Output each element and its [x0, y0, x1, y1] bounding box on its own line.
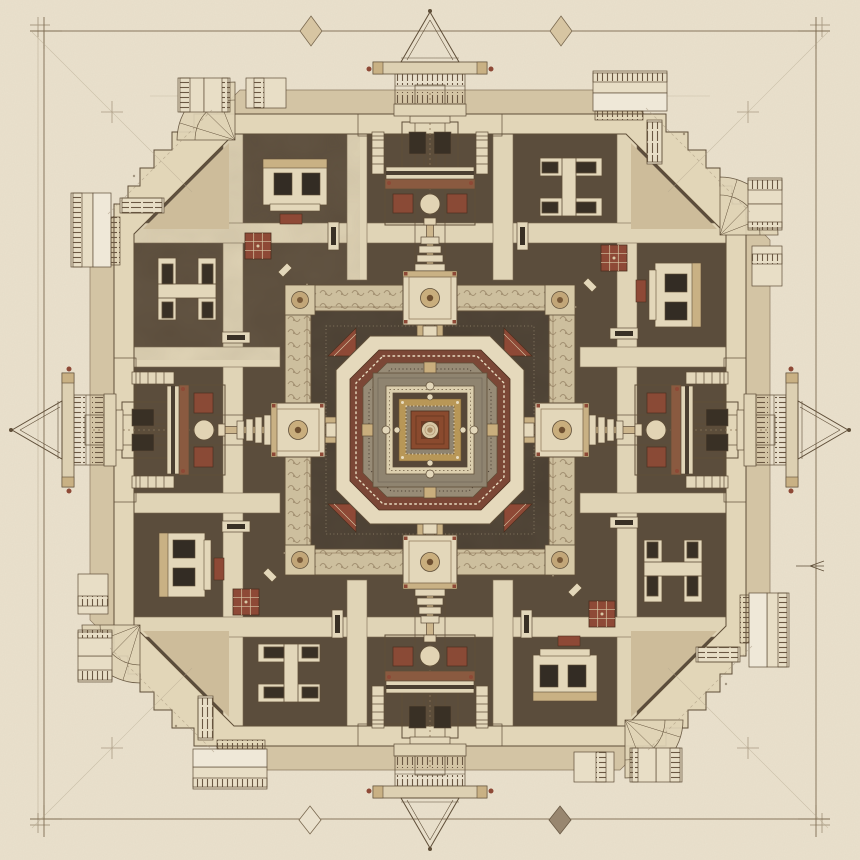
temple-mandala-plan [0, 0, 860, 860]
artwork-canvas [0, 0, 860, 860]
